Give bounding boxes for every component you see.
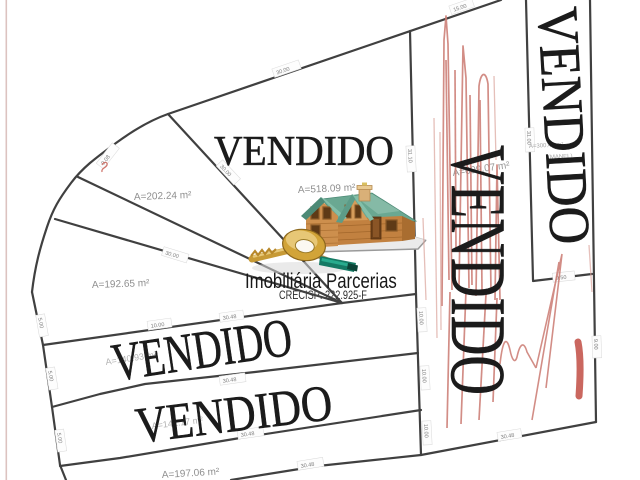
svg-text:A=202.24 m²: A=202.24 m² <box>134 190 193 203</box>
svg-text:10.00: 10.00 <box>417 311 424 325</box>
svg-text:31.00: 31.00 <box>525 131 531 145</box>
svg-text:VENDIDO: VENDIDO <box>435 145 522 395</box>
svg-text:VENDIDO: VENDIDO <box>525 5 602 246</box>
svg-text:VENDIDO: VENDIDO <box>214 127 394 175</box>
svg-text:10.00: 10.00 <box>422 424 429 438</box>
svg-text:10.00: 10.00 <box>420 369 427 383</box>
svg-text:31.10: 31.10 <box>406 149 413 163</box>
svg-text:A=192.65 m²: A=192.65 m² <box>92 278 151 291</box>
svg-text:A=197.06 m²: A=197.06 m² <box>162 466 221 480</box>
svg-text:Imobiliária Parcerias: Imobiliária Parcerias <box>245 270 397 293</box>
svg-text:9.00: 9.00 <box>592 339 598 350</box>
